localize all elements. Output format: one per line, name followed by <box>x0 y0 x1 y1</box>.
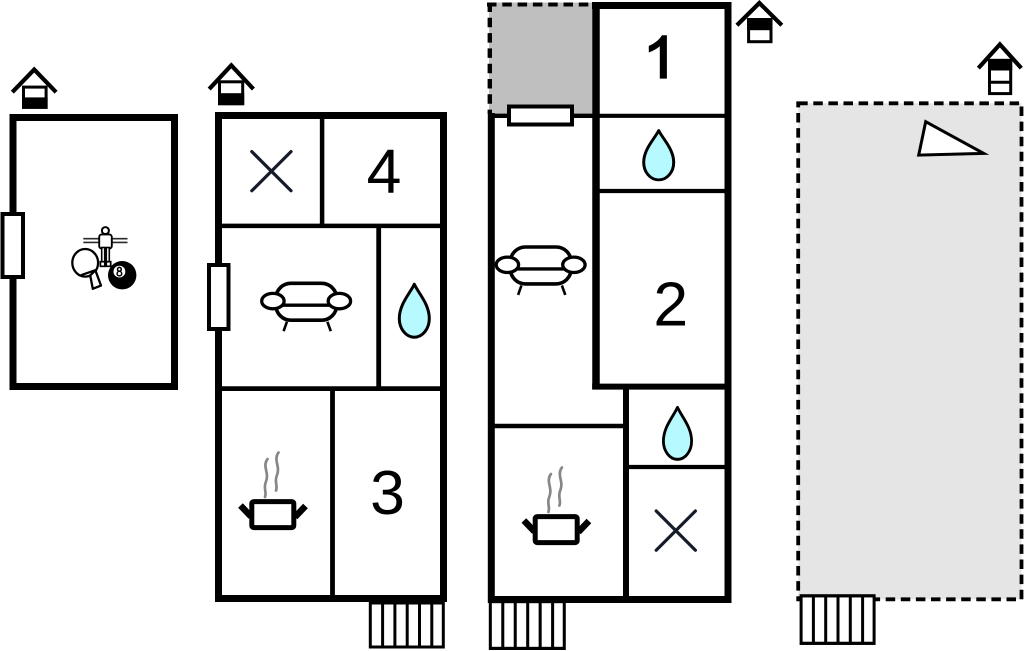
svg-text:3: 3 <box>370 458 405 528</box>
svg-text:4: 4 <box>367 137 402 207</box>
svg-text:2: 2 <box>653 270 688 340</box>
